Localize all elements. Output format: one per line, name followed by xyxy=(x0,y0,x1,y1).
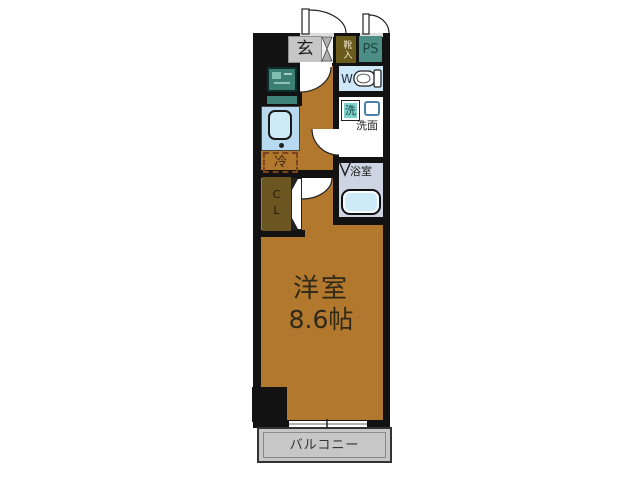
water-heater-panel xyxy=(272,72,281,79)
counter-strip xyxy=(267,96,297,104)
wall xyxy=(253,33,261,422)
bathroom-label: 浴室 xyxy=(350,166,372,177)
washroom: 洗 洗面 xyxy=(339,97,383,157)
closet-door xyxy=(291,178,302,230)
ps-door-swing-icon xyxy=(363,14,389,34)
kitchen-sink-icon xyxy=(268,110,292,140)
toilet-room-label: WC xyxy=(341,73,363,85)
toilet-room: WC xyxy=(339,66,383,91)
washroom-label: 洗面 xyxy=(356,120,378,131)
closet-label: CL xyxy=(271,188,282,220)
water-heater-panel xyxy=(284,73,292,75)
balcony-inner-line xyxy=(263,432,386,458)
wall xyxy=(333,217,390,225)
burner-icon xyxy=(279,143,284,148)
refrigerator-space: 冷 xyxy=(263,152,298,173)
pillar xyxy=(252,387,287,422)
refrigerator-label: 冷 xyxy=(274,156,287,169)
closet: CL xyxy=(262,177,291,231)
main-room: 洋室 8.6帖 xyxy=(259,276,383,332)
main-room-size: 8.6帖 xyxy=(259,307,383,332)
balcony: バルコニー xyxy=(257,427,392,463)
main-room-label: 洋室 xyxy=(259,276,383,302)
water-heater-unit xyxy=(267,67,297,92)
genkan-area: 玄 xyxy=(288,36,322,63)
wall xyxy=(383,33,390,428)
floor-plan: 玄 靴入 PS WC 洗 洗面 浴室 xyxy=(0,0,640,480)
shoe-storage-label: 靴入 xyxy=(342,40,351,60)
water-heater-panel xyxy=(274,82,290,84)
bathroom: 浴室 xyxy=(339,163,383,217)
bathtub-icon xyxy=(341,189,381,215)
basin-icon xyxy=(364,101,380,116)
genkan-step-strip xyxy=(322,36,333,63)
washing-machine-space: 洗 xyxy=(341,100,360,121)
pipe-space-label: PS xyxy=(362,43,378,56)
entrance-door-swing-icon xyxy=(302,9,346,34)
shoe-storage: 靴入 xyxy=(336,36,356,63)
kitchen-counter xyxy=(261,106,300,151)
wall xyxy=(259,230,305,237)
washing-machine-label: 洗 xyxy=(345,105,356,116)
pipe-space: PS xyxy=(359,36,382,62)
genkan-label: 玄 xyxy=(297,41,314,58)
